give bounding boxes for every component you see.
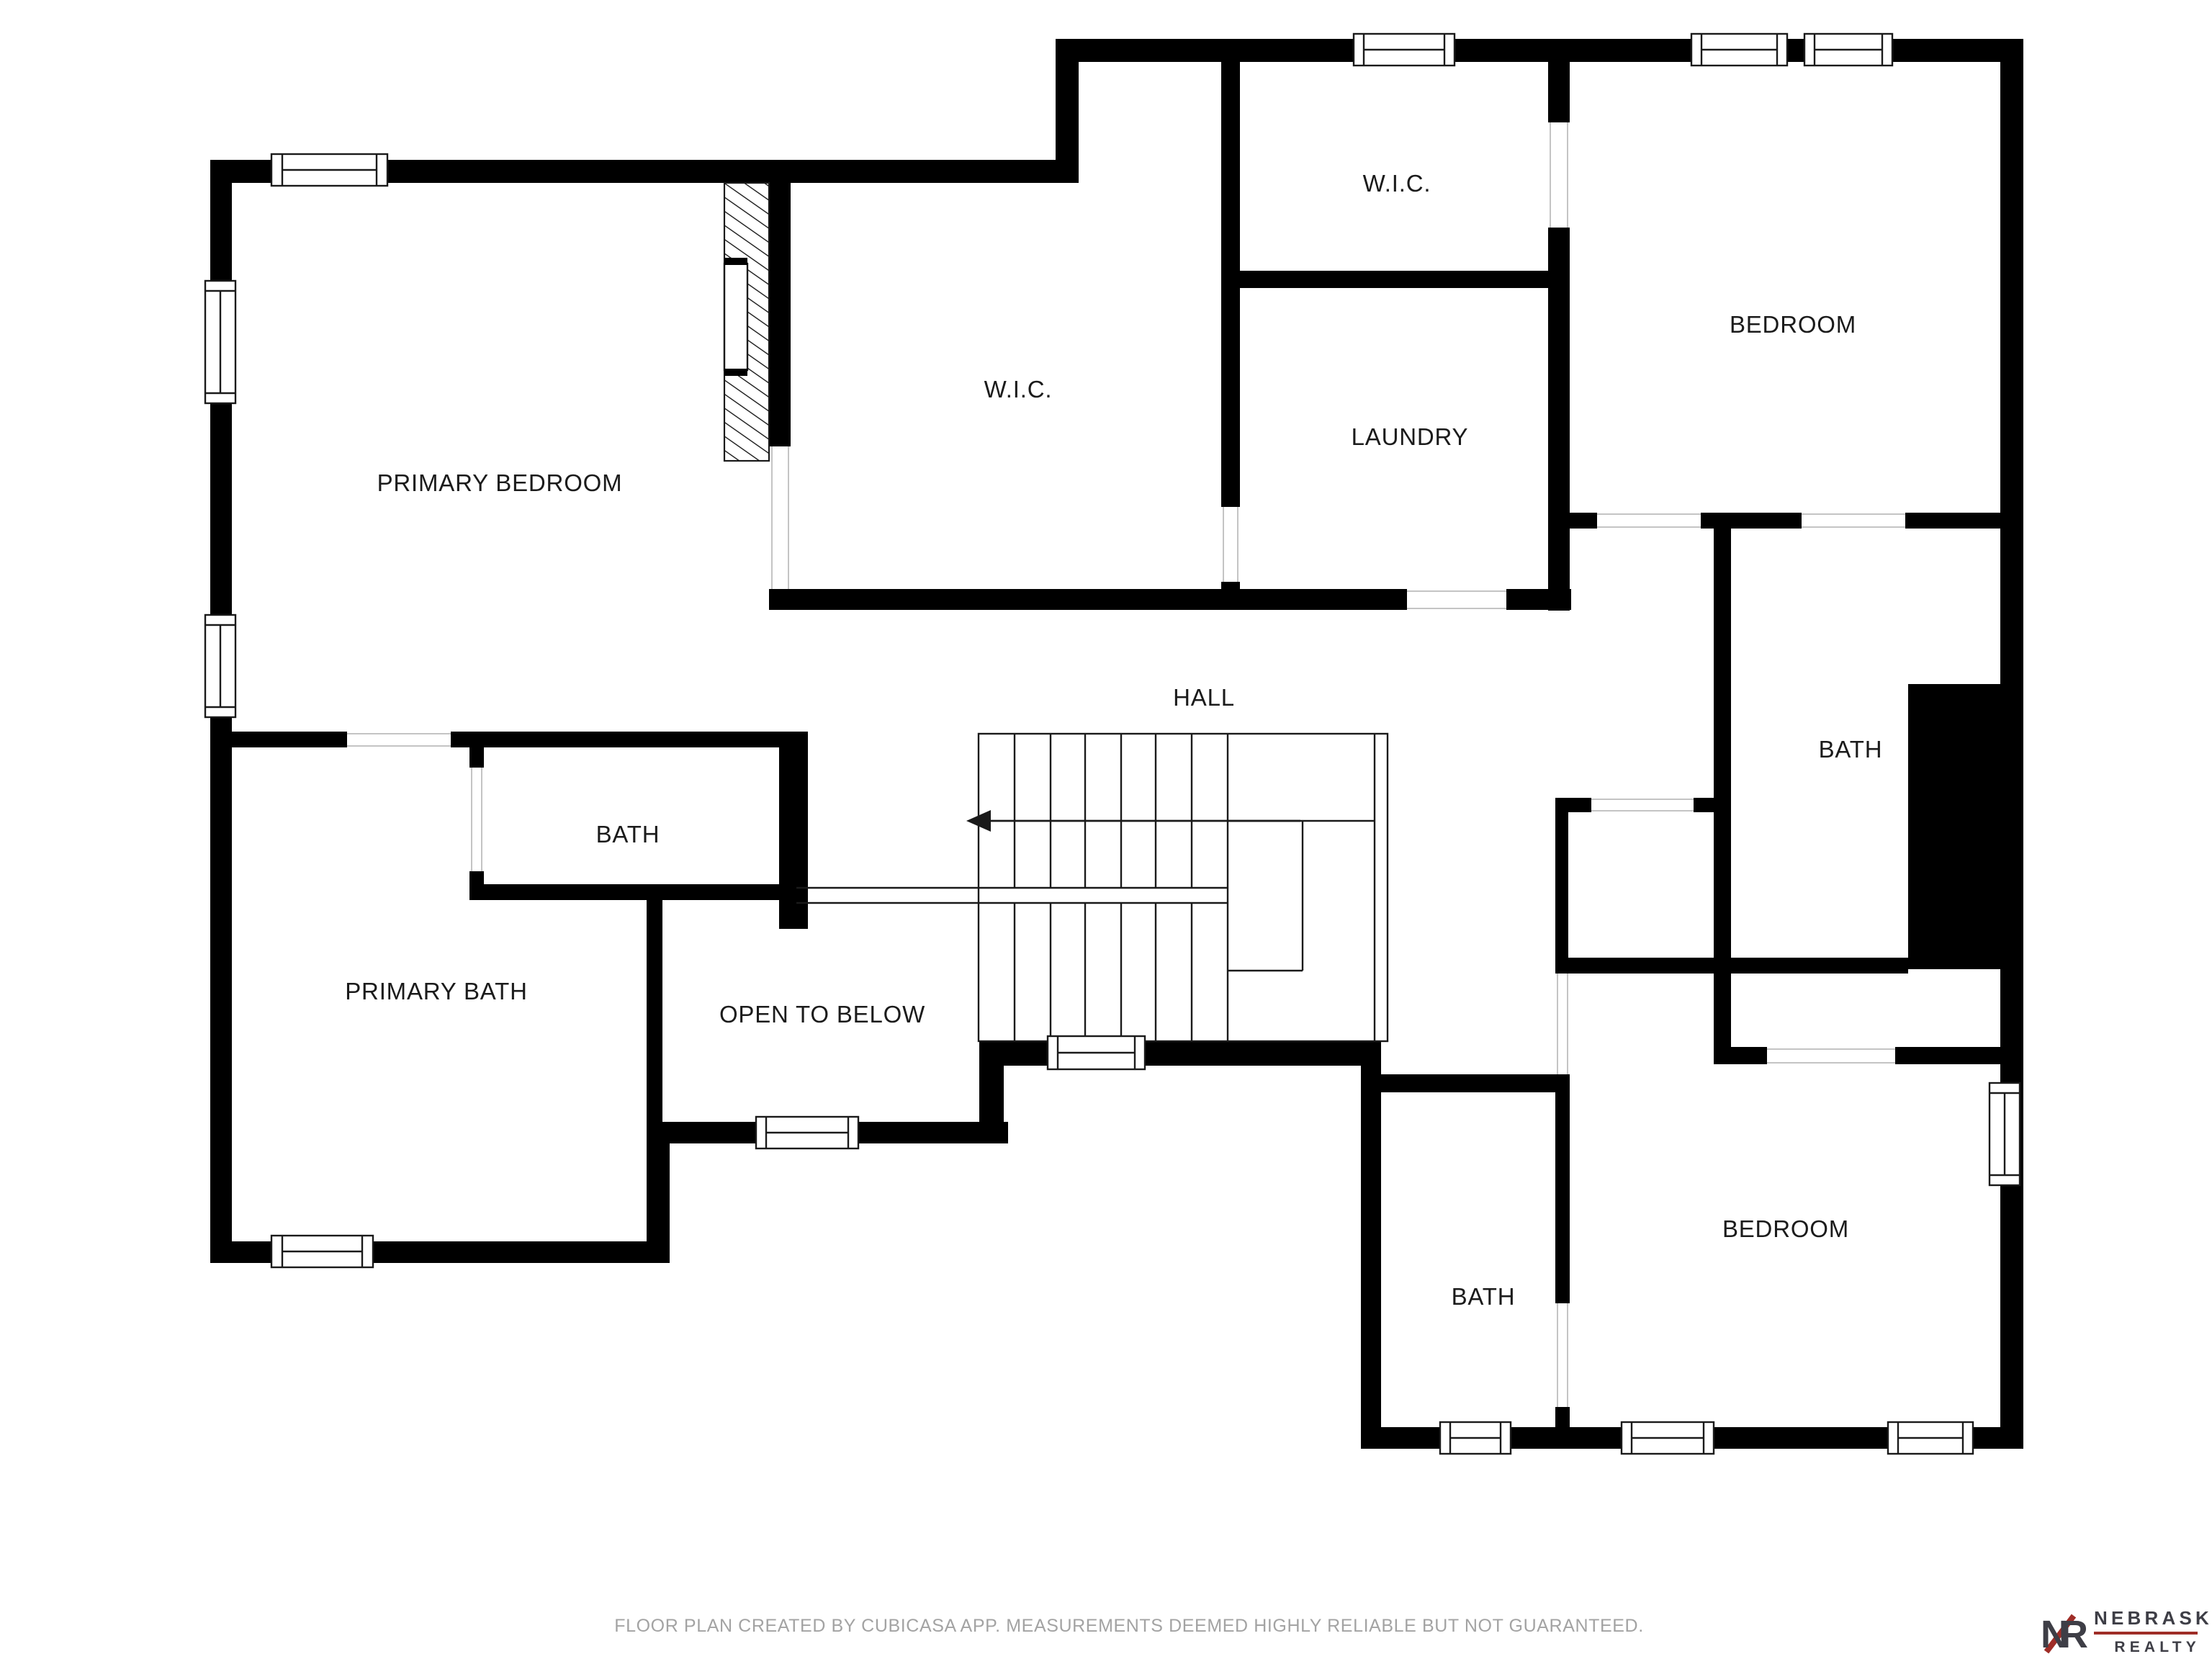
logo-monogram-icon: NR — [2041, 1613, 2087, 1656]
floor-plan-page: PRIMARY BEDROOM W.I.C. W.I.C. LAUNDRY BE… — [0, 0, 2212, 1659]
logo-brand-name: NEBRASKA — [2094, 1607, 2212, 1629]
shaft-block — [1908, 684, 2000, 969]
room-label-bath-right: BATH — [1819, 736, 1883, 763]
room-label-bath-bottom: BATH — [1452, 1283, 1516, 1310]
window-symbol — [1888, 1422, 1973, 1454]
wall — [1555, 1074, 1570, 1303]
wall — [1361, 1074, 1570, 1092]
wall — [779, 732, 808, 929]
room-label-bedroom-top-right: BEDROOM — [1730, 311, 1856, 338]
wall — [1361, 1041, 1381, 1449]
window-symbol — [1440, 1422, 1511, 1454]
wall — [469, 884, 796, 900]
door-openings — [347, 122, 1905, 1407]
wall — [1555, 798, 1568, 974]
room-label-bedroom-bottom-right: BEDROOM — [1722, 1215, 1849, 1242]
wall — [1555, 958, 1908, 974]
chimney-hatch — [724, 183, 769, 461]
room-label-primary-bedroom: PRIMARY BEDROOM — [377, 469, 623, 496]
wall — [1221, 582, 1240, 609]
wall — [1555, 1407, 1570, 1449]
room-label-bath-left: BATH — [596, 821, 660, 848]
nebraska-realty-logo: NR NEBRASKA REALTY — [2041, 1607, 2212, 1656]
room-label-primary-bath: PRIMARY BATH — [345, 978, 528, 1004]
window-symbol — [271, 154, 387, 186]
staircase — [796, 734, 1388, 1041]
wall — [1548, 60, 1570, 122]
wall — [469, 746, 484, 768]
wall — [210, 732, 347, 747]
window-symbol — [1048, 1036, 1145, 1069]
disclaimer-text: FLOOR PLAN CREATED BY CUBICASA APP. MEAS… — [614, 1616, 1644, 1636]
wall — [979, 1041, 1381, 1066]
wall — [647, 900, 662, 1123]
stair-direction-arrow — [966, 810, 1300, 832]
window-symbol — [1691, 34, 1787, 66]
wall — [1694, 798, 1714, 812]
window-symbol — [205, 281, 235, 403]
window-symbol — [271, 1236, 373, 1267]
logo-divider-line — [2094, 1632, 2198, 1635]
window-symbol — [756, 1117, 858, 1148]
wall — [769, 160, 791, 446]
wall — [1557, 513, 1597, 529]
room-label-wic-top: W.I.C. — [1363, 170, 1431, 197]
wall — [1905, 513, 2009, 529]
window-symbol — [1354, 34, 1455, 66]
wall — [451, 732, 808, 747]
window-symbol — [205, 615, 235, 717]
wall — [1715, 1047, 1767, 1064]
logo-brand-division: REALTY — [2114, 1639, 2200, 1655]
svg-text:NR: NR — [2041, 1613, 2087, 1656]
wall — [1548, 228, 1570, 611]
room-label-open-to-below: OPEN TO BELOW — [719, 1001, 925, 1028]
window-symbol — [1622, 1422, 1714, 1454]
room-label-hall: HALL — [1173, 684, 1235, 711]
window-symbol — [1990, 1083, 2020, 1185]
wall — [1701, 513, 1802, 529]
window-symbol — [1804, 34, 1892, 66]
wall — [2000, 39, 2023, 1449]
floor-plan-drawing: PRIMARY BEDROOM W.I.C. W.I.C. LAUNDRY BE… — [0, 0, 2212, 1659]
wall — [1714, 529, 1731, 1064]
room-label-wic-center: W.I.C. — [984, 376, 1053, 403]
wall — [1895, 1047, 2000, 1064]
wall — [769, 589, 1407, 610]
wall — [1221, 271, 1552, 288]
room-label-laundry: LAUNDRY — [1352, 423, 1469, 450]
